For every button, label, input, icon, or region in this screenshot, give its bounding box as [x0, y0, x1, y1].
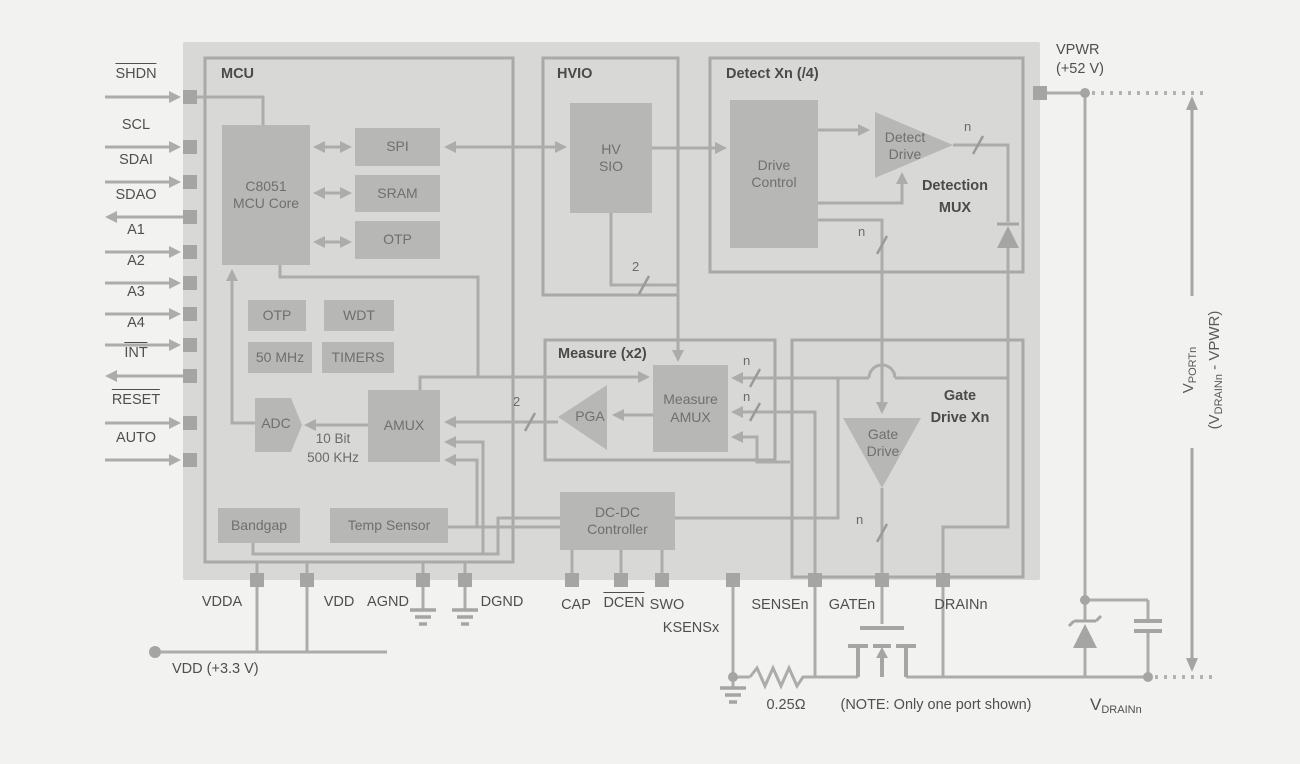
block-sram: SRAM	[355, 175, 440, 212]
agnd-ground-icon	[410, 610, 436, 624]
vpwr-label-line2: (+52 V)	[1056, 61, 1104, 77]
vdd-terminal-icon	[149, 646, 161, 658]
vportn-dimension-label: VPORTn (VDRAINn - VPWR)	[1177, 200, 1233, 540]
detect-drive-label: Detect Drive	[872, 128, 938, 164]
block-hv-sio: HV SIO	[570, 103, 652, 213]
vdrainn-v: V	[1090, 695, 1101, 714]
pin-label-sdao: SDAO	[115, 187, 156, 203]
note-label: (NOTE: Only one port shown)	[841, 697, 1032, 713]
block-timers: TIMERS	[322, 342, 394, 373]
pin-label-sensen: SENSEn	[751, 597, 808, 613]
pin-label-drainn: DRAINn	[934, 597, 987, 613]
pin-label-ksensx: KSENSx	[663, 620, 719, 636]
pin-label-scl: SCL	[122, 117, 150, 133]
block-temp-sensor: Temp Sensor	[330, 508, 448, 543]
bus-width-n-gate-lower: n	[856, 512, 863, 527]
pin-label-vdda: VDDA	[202, 594, 242, 610]
ksens-ground-icon	[720, 688, 746, 702]
vportn-v: V	[1180, 383, 1197, 393]
pin-label-shdn: SHDN	[115, 63, 156, 82]
block-dcdc: DC-DC Controller	[560, 492, 675, 550]
vpwr-label-line1: VPWR	[1056, 42, 1100, 58]
vportn-line: VPORTn	[1177, 200, 1203, 540]
block-otp-top: OTP	[355, 221, 440, 259]
adc-spec-label: 10 Bit 500 KHz	[300, 430, 366, 468]
block-c8051: C8051 MCU Core	[222, 125, 310, 265]
dgnd-ground-icon	[452, 610, 478, 624]
detect-box-title: Detect Xn (/4)	[726, 66, 819, 82]
pin-label-sdai: SDAI	[119, 152, 153, 168]
pin-label-a1: A1	[127, 222, 145, 238]
pin-label-int: INT	[124, 342, 147, 361]
pin-label-a3: A3	[127, 284, 145, 300]
vportn-paren-line: (VDRAINn - VPWR)	[1203, 200, 1229, 540]
mcu-box-title: MCU	[221, 66, 254, 82]
block-diagram: SHDN SCL SDAI SDAO A1 A2 A3 A4 INT RESET…	[0, 0, 1300, 764]
block-amux: AMUX	[368, 390, 440, 462]
block-spi: SPI	[355, 128, 440, 166]
pin-label-agnd: AGND	[367, 594, 409, 610]
block-50mhz: 50 MHz	[248, 342, 312, 373]
block-drive-control: Drive Control	[730, 100, 818, 248]
pin-label-auto: AUTO	[116, 430, 156, 446]
detect-diode-icon	[997, 224, 1019, 248]
bus-width-n-detect: n	[964, 119, 971, 134]
bus-width-2-hvsio: 2	[632, 259, 639, 274]
vdrainn-sub: DRAINn	[1101, 704, 1141, 716]
vportn-paren-pre: (V	[1206, 414, 1223, 429]
mosfet-icon	[848, 628, 916, 677]
block-measure-amux: Measure AMUX	[653, 365, 728, 452]
pin-label-dcen: DCEN	[603, 592, 644, 611]
pin-label-gaten: GATEn	[829, 597, 875, 613]
block-wdt: WDT	[324, 300, 394, 331]
hvio-box-title: HVIO	[557, 66, 592, 82]
capacitor-icon	[1134, 621, 1162, 631]
bus-width-n-gate-upper: n	[858, 224, 865, 239]
tvs-diode-icon	[1069, 616, 1101, 648]
gate-drive-label: Gate Drive	[852, 425, 914, 461]
block-bandgap: Bandgap	[218, 508, 300, 543]
vportn-sub: PORTn	[1187, 347, 1199, 383]
pin-label-vdd: VDD	[324, 594, 355, 610]
bus-width-n-measure-a: n	[743, 353, 750, 368]
measure-box-title: Measure (x2)	[558, 346, 647, 362]
vdrainn-label: VDRAINn	[1090, 695, 1142, 716]
pga-label: PGA	[568, 403, 612, 431]
bus-width-n-measure-b: n	[743, 389, 750, 404]
detection-mux-label: Detection MUX	[905, 176, 1005, 220]
vdd-supply-label: VDD (+3.3 V)	[172, 661, 259, 677]
block-otp-small: OTP	[248, 300, 306, 331]
pin-label-a2: A2	[127, 253, 145, 269]
pin-label-cap: CAP	[561, 597, 591, 613]
gate-drive-box-title: Gate Drive Xn	[905, 386, 1015, 430]
pin-label-dgnd: DGND	[481, 594, 524, 610]
vportn-paren-post: - VPWR)	[1206, 311, 1223, 374]
vportn-paren-sub: DRAINn	[1213, 374, 1225, 414]
adc-label: ADC	[252, 410, 300, 438]
pin-label-a4: A4	[127, 315, 145, 331]
sense-resistor-label: 0.25Ω	[766, 697, 805, 713]
bus-width-2-pga: 2	[513, 394, 520, 409]
pin-label-swo: SWO	[650, 597, 685, 613]
pin-label-reset: RESET	[112, 389, 160, 408]
